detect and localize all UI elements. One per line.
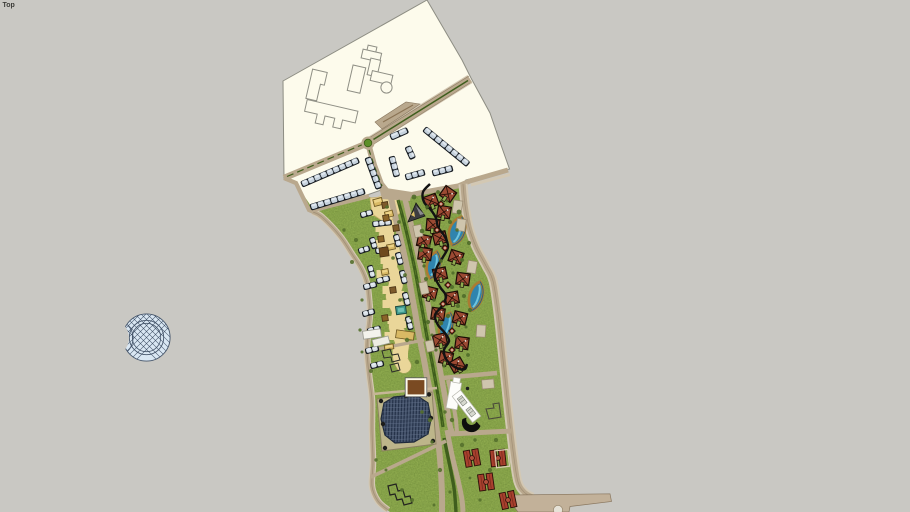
svg-text:Top: Top xyxy=(3,2,15,9)
